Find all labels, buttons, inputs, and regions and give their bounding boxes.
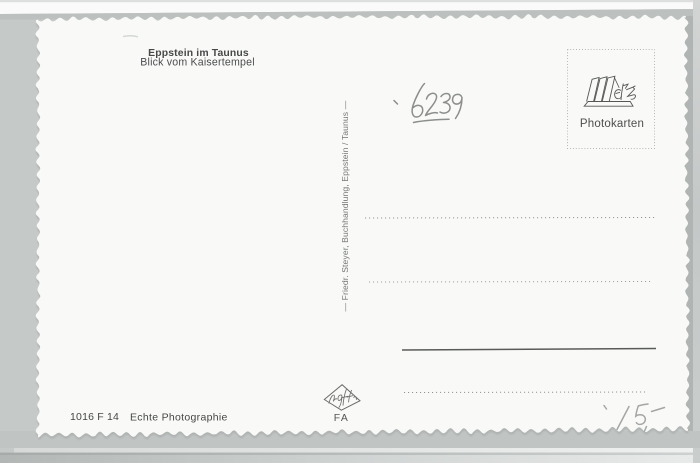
svg-text:Echte Photographie: Echte Photographie [130,412,228,424]
svg-text:— Friedr. Steyer, Buchhandlung: — Friedr. Steyer, Buchhandlung, Eppstein… [340,100,350,311]
svg-text:1016 F 14: 1016 F 14 [70,411,119,423]
svg-text:Photokarten: Photokarten [580,118,644,130]
svg-text:FA: FA [334,413,350,424]
svg-text:Blick vom Kaisertempel: Blick vom Kaisertempel [140,57,255,69]
